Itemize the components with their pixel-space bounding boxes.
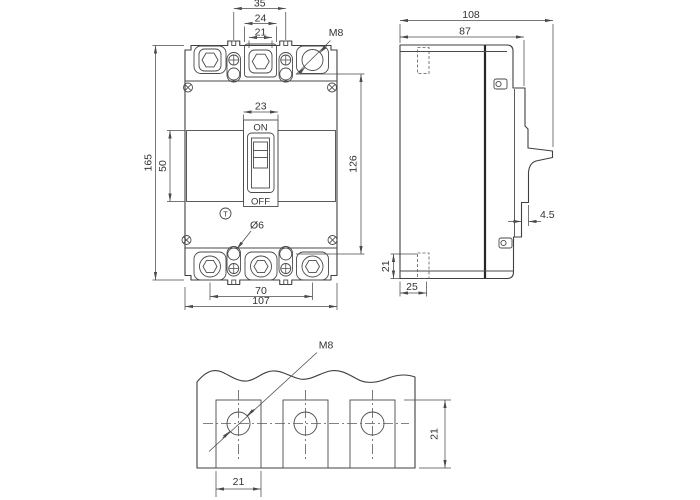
dim-87-label: 87 <box>459 26 471 38</box>
top-terminal-center <box>245 44 277 77</box>
dim-21-front: 21 <box>249 27 272 49</box>
dia6-label: Ø6 <box>250 220 264 232</box>
right-wing-panel <box>278 131 336 202</box>
switch-off-label: OFF <box>251 197 270 208</box>
dim-21-pad-height: 21 <box>404 400 451 468</box>
dim-21-front-label: 21 <box>255 27 267 39</box>
drawing-canvas: ON OFF T <box>0 0 700 500</box>
m8-label-front: M8 <box>329 27 344 39</box>
dim-107-label: 107 <box>252 295 270 307</box>
bottom-terminal-left <box>194 252 226 280</box>
accessory-clip-top <box>494 79 507 89</box>
bottom-terminal-center <box>245 252 277 280</box>
dim-21-pad-width: 21 <box>216 471 261 497</box>
dim-50-label: 50 <box>157 160 169 172</box>
trip-test-label: T <box>223 210 228 219</box>
dim-23: 23 <box>244 101 279 120</box>
trip-test-button: T <box>220 208 231 219</box>
bottom-tab-slot-right <box>284 280 288 285</box>
dim-21-side-label: 21 <box>380 260 392 272</box>
dim-25-label: 25 <box>406 281 418 293</box>
cover-screw-bottom-right <box>328 236 337 245</box>
cover-screw-top-right <box>328 83 337 92</box>
m8-callout-detail: M8 <box>209 340 333 452</box>
top-terminal-left <box>194 46 226 74</box>
dia6-callout: Ø6 <box>237 220 264 249</box>
switch-on-label: ON <box>253 123 267 134</box>
dim-50: 50 <box>157 131 186 202</box>
accessory-clip-bottom <box>499 238 512 248</box>
bottom-boss-right <box>279 247 293 277</box>
dim-21-pad-width-label: 21 <box>233 476 245 488</box>
top-boss-right <box>279 53 293 83</box>
bottom-boss-left <box>227 247 241 277</box>
side-profile-outline <box>400 45 553 279</box>
terminal-detail-view: M8 21 21 <box>197 340 451 498</box>
dim-25: 25 <box>400 281 427 297</box>
cover-screw-bottom-left <box>182 236 191 245</box>
top-boss-left <box>227 53 241 83</box>
bottom-terminal-right <box>297 252 329 280</box>
dim-87: 87 <box>400 26 524 87</box>
bottom-tab-slot-left <box>232 280 236 285</box>
technical-drawing-page: ON OFF T <box>0 0 700 500</box>
dim-24-label: 24 <box>255 13 267 25</box>
front-view: ON OFF T <box>143 0 365 310</box>
busbar-plate-outline <box>197 370 415 468</box>
dim-23-label: 23 <box>255 101 267 113</box>
dim-21-side: 21 <box>380 254 417 279</box>
hidden-terminal-hole-bottom <box>418 253 430 279</box>
top-tab-slot-left <box>232 41 236 46</box>
dim-21-pad-height-label: 21 <box>429 428 441 440</box>
toggle-switch <box>248 133 275 193</box>
dim-108-label: 108 <box>462 9 480 21</box>
dim-108: 108 <box>400 9 553 147</box>
m8-label-detail: M8 <box>319 340 334 352</box>
dim-4-5: 4.5 <box>508 205 555 226</box>
dim-126: 126 <box>296 74 365 254</box>
side-view: 108 87 4.5 21 25 <box>380 9 555 297</box>
dim-126-label: 126 <box>348 155 360 173</box>
left-wing-panel <box>187 131 244 202</box>
dim-165-label: 165 <box>143 154 155 172</box>
dim-4-5-label: 4.5 <box>540 209 555 221</box>
dim-35-label: 35 <box>254 0 266 10</box>
top-tab-slot-right <box>284 41 288 46</box>
